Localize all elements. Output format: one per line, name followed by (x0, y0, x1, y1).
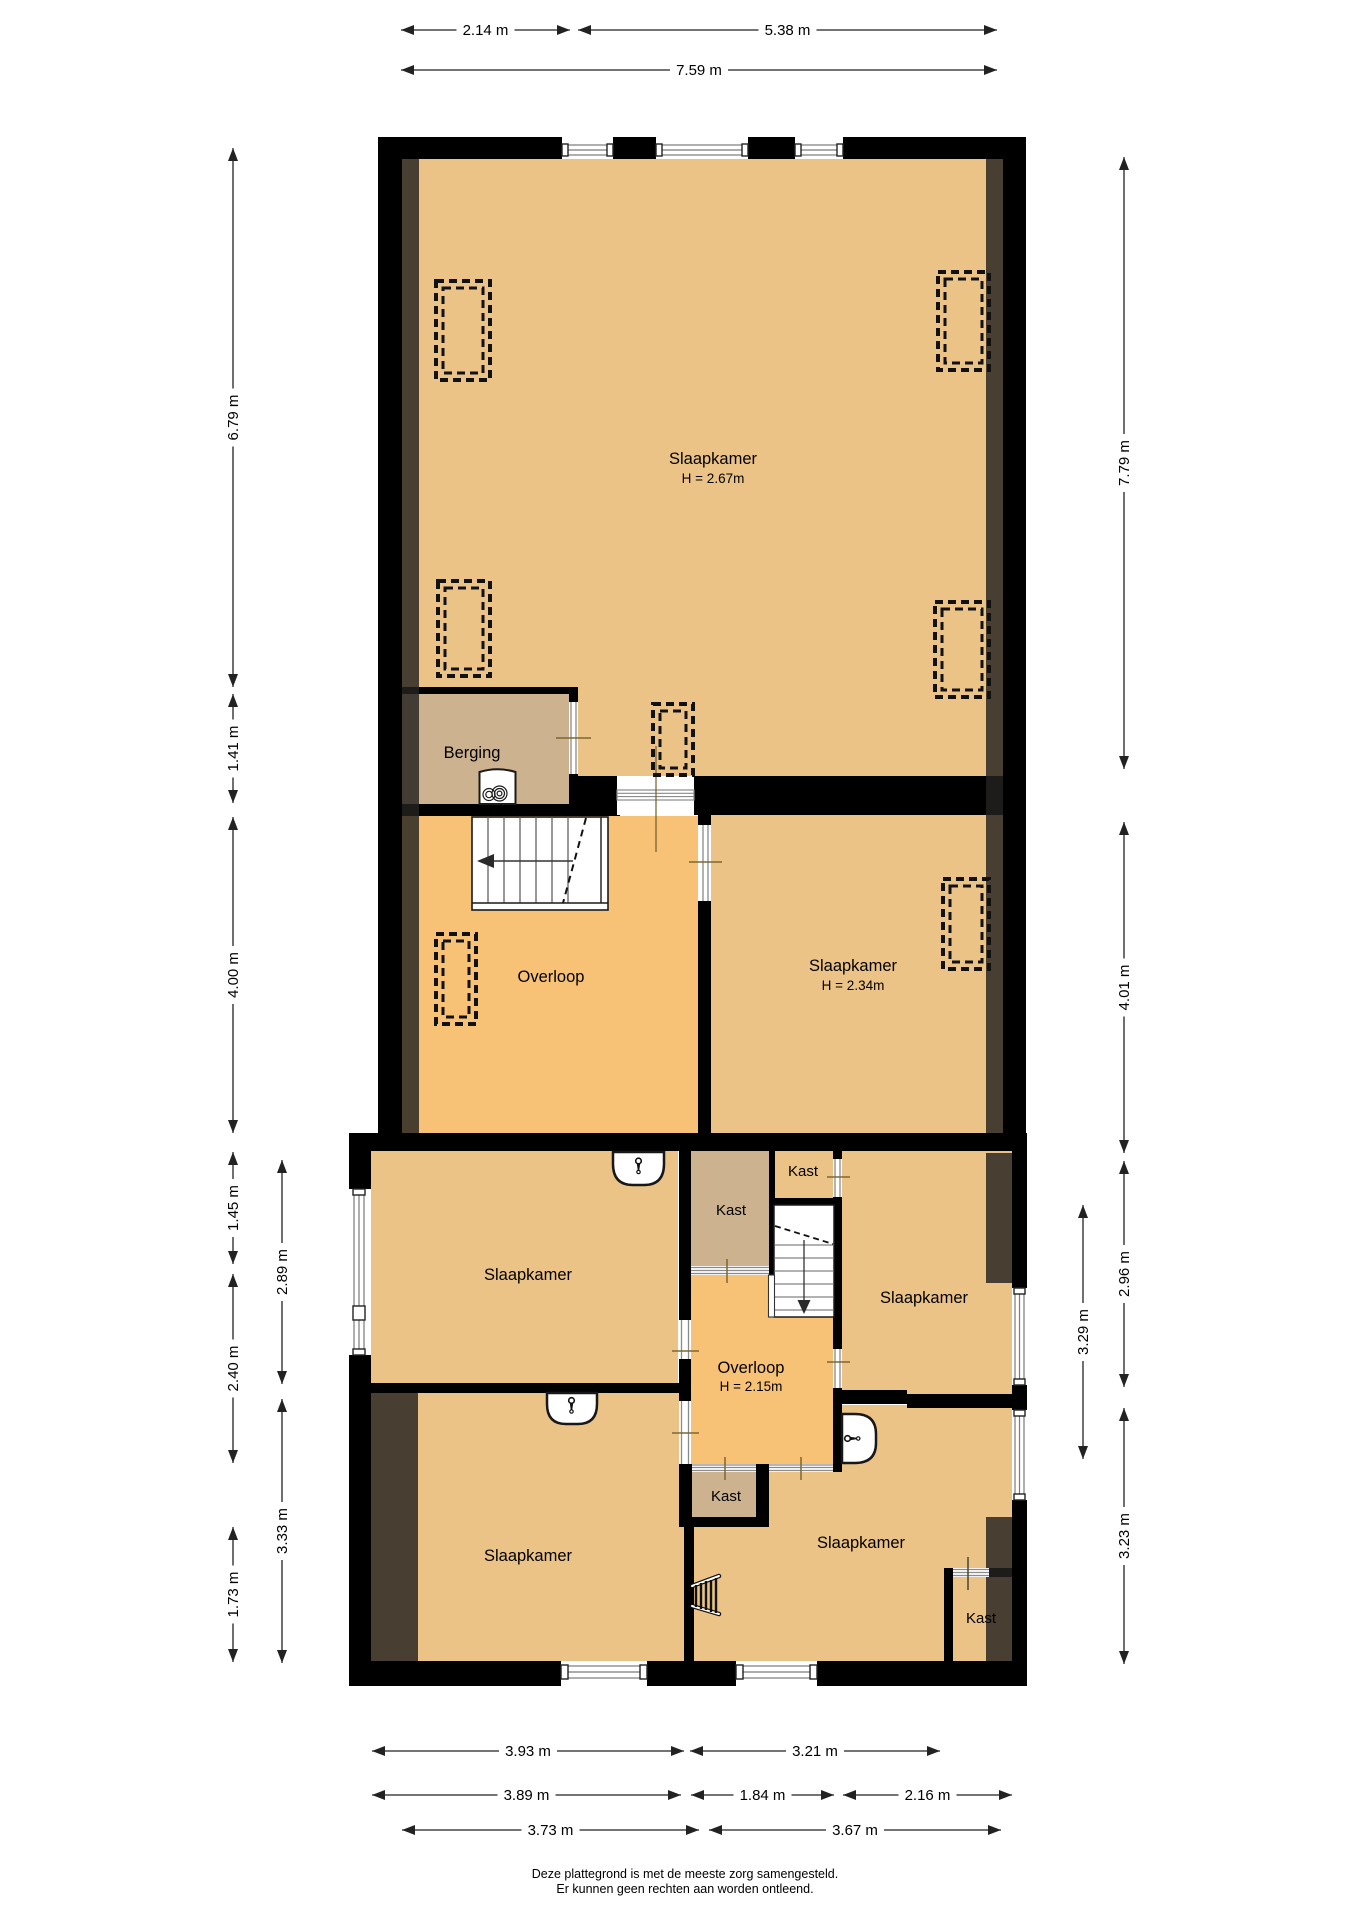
svg-text:2.14 m: 2.14 m (463, 22, 509, 39)
svg-text:7.59 m: 7.59 m (676, 62, 722, 79)
svg-text:2.40 m: 2.40 m (225, 1346, 242, 1392)
svg-text:Deze plattegrond is met de mee: Deze plattegrond is met de meeste zorg s… (532, 1867, 838, 1881)
svg-text:3.23 m: 3.23 m (1116, 1513, 1133, 1559)
svg-text:5.38 m: 5.38 m (765, 22, 811, 39)
svg-text:H = 2.34m: H = 2.34m (822, 978, 885, 993)
svg-text:1.73 m: 1.73 m (225, 1572, 242, 1618)
svg-text:Slaapkamer: Slaapkamer (484, 1547, 573, 1565)
svg-text:3.67 m: 3.67 m (832, 1822, 878, 1839)
svg-text:Berging: Berging (444, 744, 501, 762)
svg-text:3.21 m: 3.21 m (792, 1743, 838, 1760)
svg-text:3.93 m: 3.93 m (505, 1743, 551, 1760)
svg-text:Slaapkamer: Slaapkamer (880, 1289, 969, 1307)
svg-text:1.84 m: 1.84 m (740, 1787, 786, 1804)
svg-text:H = 2.67m: H = 2.67m (682, 471, 745, 486)
svg-text:4.00 m: 4.00 m (225, 952, 242, 998)
svg-text:2.96 m: 2.96 m (1116, 1251, 1133, 1297)
svg-text:4.01 m: 4.01 m (1116, 965, 1133, 1011)
svg-text:Overloop: Overloop (718, 1359, 785, 1377)
svg-text:Slaapkamer: Slaapkamer (817, 1534, 906, 1552)
svg-text:1.45 m: 1.45 m (225, 1185, 242, 1231)
svg-text:Kast: Kast (716, 1202, 747, 1219)
svg-text:Slaapkamer: Slaapkamer (484, 1266, 573, 1284)
svg-text:2.89 m: 2.89 m (274, 1249, 291, 1295)
svg-text:3.73 m: 3.73 m (528, 1822, 574, 1839)
svg-text:3.33 m: 3.33 m (274, 1508, 291, 1554)
svg-text:3.89 m: 3.89 m (504, 1787, 550, 1804)
svg-text:H = 2.15m: H = 2.15m (720, 1379, 783, 1394)
svg-text:Kast: Kast (788, 1163, 819, 1180)
svg-text:Slaapkamer: Slaapkamer (809, 957, 898, 975)
svg-text:Er kunnen geen rechten aan wor: Er kunnen geen rechten aan worden ontlee… (556, 1882, 813, 1896)
svg-text:Slaapkamer: Slaapkamer (669, 450, 758, 468)
svg-text:Kast: Kast (966, 1610, 997, 1627)
svg-text:3.29 m: 3.29 m (1075, 1309, 1092, 1355)
svg-text:Overloop: Overloop (518, 968, 585, 986)
svg-text:6.79 m: 6.79 m (225, 395, 242, 441)
svg-text:1.41 m: 1.41 m (225, 726, 242, 772)
svg-text:Kast: Kast (711, 1488, 742, 1505)
svg-text:7.79 m: 7.79 m (1116, 440, 1133, 486)
svg-text:2.16 m: 2.16 m (905, 1787, 951, 1804)
